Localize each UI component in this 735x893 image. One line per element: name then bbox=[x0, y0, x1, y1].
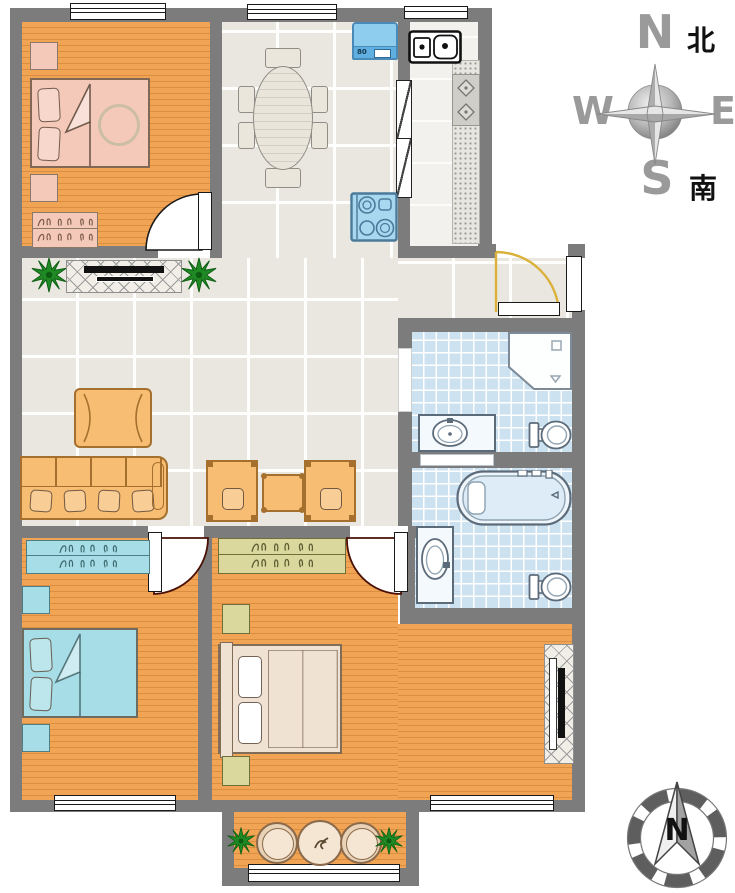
wall-kitchen-right bbox=[478, 8, 492, 258]
door-bath-lower bbox=[420, 454, 494, 466]
nightstand bbox=[22, 724, 50, 752]
north-arrow-label: N bbox=[664, 813, 689, 848]
mattress bbox=[268, 650, 338, 748]
washing-machine-panel: 80 bbox=[354, 46, 396, 58]
door-leaf-bedroomBL bbox=[148, 532, 162, 592]
wardrobe bbox=[218, 538, 346, 574]
window-dining bbox=[247, 4, 337, 20]
sofa-pillow bbox=[97, 489, 120, 512]
compass-w-label: W bbox=[573, 89, 614, 133]
sofa bbox=[20, 456, 168, 520]
sofa-pillow bbox=[29, 489, 52, 512]
pillow bbox=[238, 702, 262, 744]
dining-chair bbox=[311, 86, 328, 113]
balcony-railing bbox=[248, 864, 400, 882]
north-arrow-compass: N bbox=[620, 776, 735, 890]
pillow bbox=[29, 637, 53, 672]
dining-chair bbox=[311, 122, 328, 149]
door-bath-upper bbox=[398, 348, 412, 412]
bathtub bbox=[456, 470, 572, 526]
toilet bbox=[528, 568, 572, 606]
nightstand bbox=[222, 604, 250, 634]
window-bedroomBL bbox=[54, 795, 176, 811]
door-leaf-bedroomTL bbox=[198, 192, 212, 250]
armchair bbox=[206, 460, 258, 522]
pillow bbox=[37, 126, 61, 161]
washing-machine-door bbox=[374, 49, 391, 58]
dining-chair bbox=[265, 168, 301, 188]
pillow bbox=[238, 656, 262, 698]
door-leaf-master bbox=[394, 532, 408, 592]
plant bbox=[226, 824, 256, 858]
nightstand bbox=[30, 42, 58, 70]
wardrobe bbox=[26, 540, 150, 574]
armchair-pillow bbox=[222, 488, 244, 510]
wall-left bbox=[10, 8, 22, 812]
pillow bbox=[29, 676, 53, 711]
plant bbox=[374, 824, 404, 858]
dining-table bbox=[253, 66, 313, 170]
dresser bbox=[32, 212, 98, 248]
side-table bbox=[262, 474, 304, 512]
armchair bbox=[304, 460, 356, 522]
plant bbox=[30, 255, 68, 295]
nightstand bbox=[22, 586, 50, 614]
vanity-sink bbox=[416, 526, 454, 604]
kitchen-sliding-door-panel-2 bbox=[396, 138, 412, 198]
entry-door-jamb bbox=[566, 256, 582, 312]
wall-bath1-top bbox=[398, 318, 572, 332]
wall-bedrooms-top-a bbox=[10, 526, 148, 538]
double-bed-master bbox=[218, 644, 342, 754]
tv bbox=[84, 266, 164, 273]
double-bed-blue bbox=[22, 628, 138, 718]
sofa-armrest bbox=[152, 462, 164, 510]
compass-e-label: E bbox=[710, 89, 735, 133]
entry-door-leaf bbox=[498, 302, 560, 316]
wall-kitchen-bottom bbox=[398, 246, 492, 258]
compass-south-zh: 南 bbox=[689, 172, 717, 202]
compass-s-label: S bbox=[640, 151, 673, 202]
vanity-sink bbox=[418, 414, 496, 452]
headboard bbox=[220, 642, 233, 758]
round-chair bbox=[256, 822, 298, 864]
wall-bath2-bottom bbox=[400, 608, 585, 624]
window-master bbox=[430, 795, 554, 811]
compass-north-zh: 北 bbox=[687, 24, 715, 57]
floor-plan-canvas: 80 bbox=[0, 0, 735, 893]
tv-stand bbox=[96, 276, 154, 282]
kitchen-double-sink bbox=[408, 30, 462, 64]
toilet bbox=[528, 416, 572, 454]
dining-chair bbox=[265, 48, 301, 68]
round-table bbox=[297, 820, 343, 866]
pillow bbox=[37, 87, 61, 122]
double-bed-pink bbox=[30, 78, 150, 168]
tv-master bbox=[558, 668, 565, 738]
blanket-fold bbox=[64, 82, 94, 168]
tv-master-stand bbox=[549, 658, 557, 750]
washing-machine-label: 80 bbox=[357, 48, 367, 56]
plant bbox=[180, 255, 218, 295]
armchair-pillow bbox=[320, 488, 342, 510]
gas-stove bbox=[350, 192, 398, 242]
sofa-pillow bbox=[63, 489, 86, 512]
compass-rose: N 北 W E S 南 bbox=[573, 2, 735, 202]
nightstand bbox=[222, 756, 250, 786]
window-bedroomTL bbox=[70, 3, 166, 20]
nightstand bbox=[30, 174, 58, 202]
coffee-table bbox=[74, 388, 152, 448]
washing-machine: 80 bbox=[352, 22, 398, 60]
blanket-fold bbox=[54, 632, 84, 718]
corner-shower bbox=[508, 332, 572, 390]
wall-bedrooms-top-b bbox=[204, 526, 350, 538]
kitchen-hob bbox=[452, 74, 480, 126]
sofa-back-cushions bbox=[22, 458, 162, 487]
compass-n-label: N bbox=[636, 5, 675, 59]
bed-decor-ring bbox=[98, 104, 140, 146]
kitchen-sliding-door-panel-1 bbox=[396, 80, 412, 140]
window-kitchen bbox=[404, 6, 468, 19]
